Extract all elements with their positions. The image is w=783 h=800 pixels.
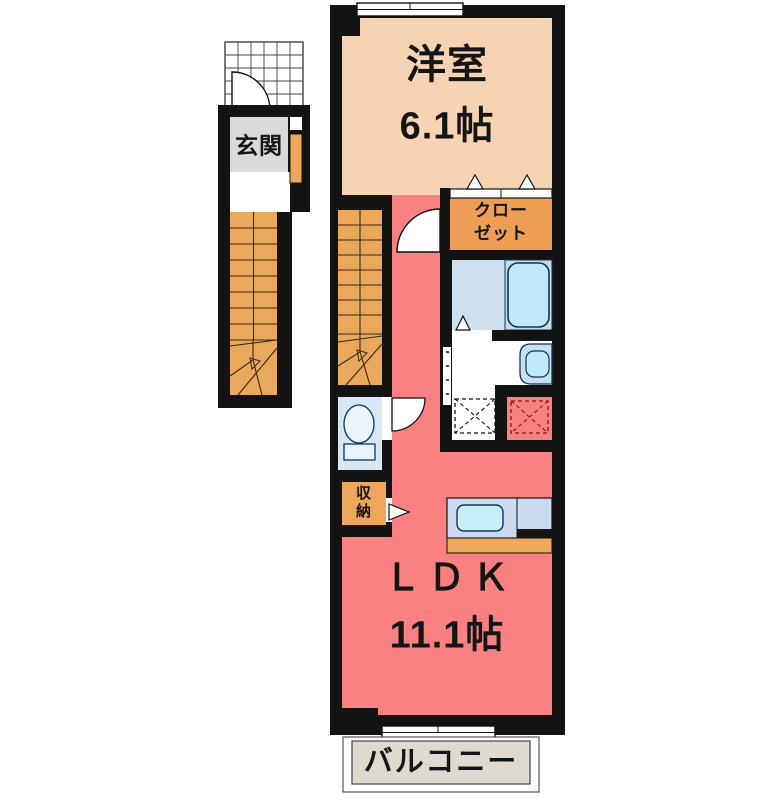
storage-bottom-wall (330, 525, 392, 537)
floor-plan-drawing (0, 0, 783, 800)
entrance-room (218, 105, 310, 212)
washing-machine-space (455, 399, 495, 433)
entrance-staircase (218, 212, 292, 408)
stairs-bottom-wall (330, 385, 392, 397)
kitchen-wall-segment (517, 529, 552, 538)
kitchen-base-cabinet (447, 538, 552, 553)
toilet-bottom-wall (330, 470, 392, 482)
stairs-right-wall (382, 197, 392, 385)
toilet-tank (344, 444, 375, 460)
closet-left-wall (440, 188, 450, 250)
closet-bottom-wall (440, 250, 565, 260)
washroom-bottom-wall (440, 440, 507, 452)
floor-plan-canvas: 洋室 6.1帖 クロー ゼット 玄関 収 納 ＬＤＫ 11.1帖 バルコニー (0, 0, 783, 800)
entrance-hall-floor (230, 172, 290, 212)
toilet-doorway (382, 397, 392, 440)
bathtub (508, 263, 549, 327)
western-room-floor (342, 18, 552, 195)
balcony (343, 737, 539, 792)
bathroom-door-threshold (452, 330, 492, 341)
ldk-floor (342, 537, 552, 715)
kitchen-sink (457, 505, 503, 531)
corner-pillar (330, 708, 378, 735)
main-unit (330, 3, 565, 739)
wall-niche (290, 117, 302, 130)
entrance-floor (230, 117, 288, 172)
closet-floor (450, 197, 552, 250)
toilet-bowl (344, 405, 374, 443)
entrance-porch (225, 42, 303, 110)
kitchen (447, 498, 552, 553)
wall-pillar (342, 18, 360, 36)
top-sliding-window (357, 3, 463, 16)
shoe-cabinet (290, 134, 302, 183)
washroom-step-wall-v (495, 385, 507, 440)
balcony-floor (352, 741, 530, 784)
unit-staircase (330, 197, 392, 397)
washbasin (526, 351, 549, 377)
washroom-sliding-door (443, 347, 451, 405)
storage-floor (342, 482, 386, 525)
bathroom (440, 260, 565, 341)
